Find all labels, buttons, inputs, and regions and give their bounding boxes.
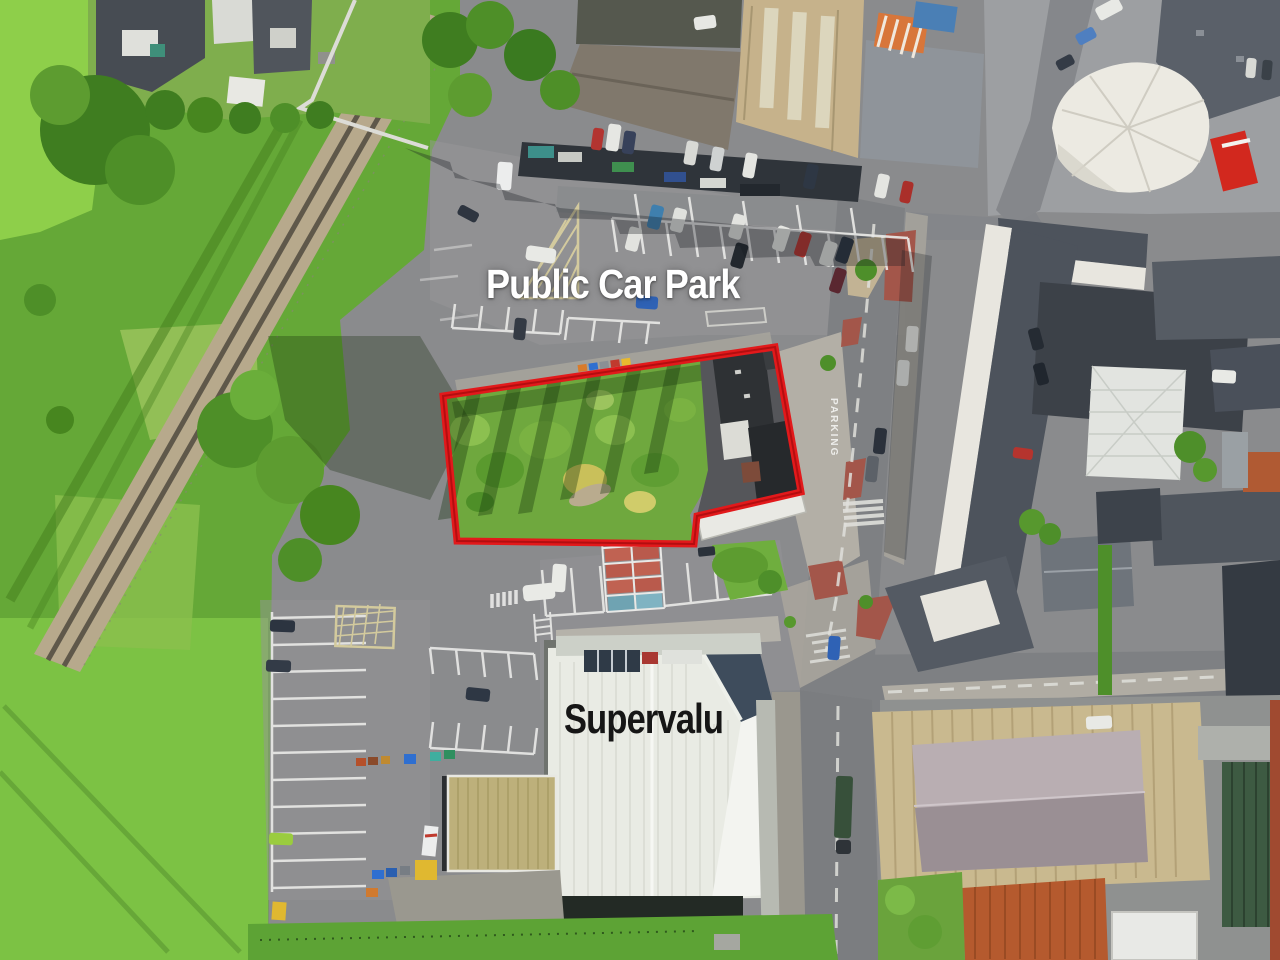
street-tree	[859, 595, 873, 609]
hedge	[270, 103, 300, 133]
bin	[588, 362, 598, 370]
grey-buildings	[860, 40, 984, 168]
truck	[834, 776, 853, 839]
yellow-container	[415, 860, 437, 880]
white-warehouse-roof	[1086, 366, 1186, 480]
mini-zebra	[492, 590, 516, 608]
supermarket-label: Supervalu	[564, 698, 723, 740]
rust-roof-small	[1243, 452, 1280, 492]
red-brick-paving	[808, 560, 848, 600]
field-bottom-left-bright	[0, 618, 268, 960]
weeds	[908, 915, 942, 949]
shop-sign	[612, 162, 634, 172]
car	[1245, 58, 1257, 79]
bush	[24, 284, 56, 316]
scrub	[624, 491, 656, 513]
car	[827, 636, 841, 661]
green-clad-building	[1222, 762, 1274, 927]
bin	[578, 364, 588, 372]
tree	[230, 370, 280, 420]
red-roof-strip	[1270, 700, 1280, 960]
ribbed-roof-small	[1222, 432, 1248, 488]
shed-roof-white	[720, 420, 752, 460]
apartment-complex	[885, 218, 1280, 700]
crate	[386, 868, 397, 877]
car	[513, 317, 527, 340]
bush	[1039, 523, 1061, 545]
hedge	[306, 101, 334, 129]
side-store-roof-tan	[448, 776, 556, 871]
trailer	[522, 582, 555, 601]
bin	[621, 358, 631, 366]
skylight	[744, 394, 750, 399]
aerial-scene	[0, 0, 1280, 960]
market-canopy-area	[984, 0, 1280, 226]
parking-bay-lines	[430, 722, 537, 754]
tree	[448, 73, 492, 117]
bin	[610, 359, 620, 367]
car-park-label: Public Car Park	[486, 264, 740, 305]
street-tree	[784, 616, 796, 628]
shop-sign	[664, 172, 686, 182]
accessible-bay	[636, 592, 663, 610]
crate	[381, 756, 390, 764]
aerial-photo: Public Car Park Supervalu PARKING	[0, 0, 1280, 960]
shop-sign	[740, 184, 780, 196]
house-wall	[270, 28, 296, 48]
white-container	[1112, 912, 1197, 960]
rear-yards	[576, 0, 742, 48]
car	[899, 180, 914, 204]
parking-bay-lines	[430, 648, 537, 680]
tree	[1174, 431, 1206, 463]
grass-strip-south	[248, 914, 838, 960]
car	[698, 546, 716, 557]
crate	[366, 888, 378, 897]
tree	[540, 70, 580, 110]
tree	[504, 29, 556, 81]
chimney	[1236, 56, 1244, 62]
tree	[30, 65, 90, 125]
brick-shed	[741, 461, 761, 483]
crate	[356, 758, 366, 766]
car	[605, 123, 622, 152]
slate-block	[1222, 560, 1280, 700]
car	[270, 620, 295, 633]
truck-cab	[836, 840, 851, 854]
tree	[278, 538, 322, 582]
industrial-warehouse	[872, 695, 1280, 960]
shop-sign	[528, 146, 554, 158]
crate	[404, 754, 416, 764]
accessible-bay	[608, 594, 635, 612]
crate	[400, 866, 410, 875]
shop-sign	[700, 178, 726, 188]
shop-sign	[558, 152, 582, 162]
crate	[444, 750, 455, 759]
crate	[372, 870, 384, 879]
car	[874, 173, 891, 199]
store-sign-red	[642, 652, 658, 664]
street-tree	[820, 355, 836, 371]
grey-gable-shed	[1040, 534, 1134, 612]
van	[551, 564, 567, 593]
store-sign-white	[662, 650, 702, 664]
development-site	[438, 332, 806, 543]
bin	[599, 361, 609, 369]
tree	[105, 135, 175, 205]
van-stripe	[425, 835, 437, 836]
car	[1086, 715, 1113, 729]
hedge	[187, 97, 223, 133]
tree	[466, 1, 514, 49]
garden-shed	[150, 44, 165, 57]
hedge	[229, 102, 261, 134]
car	[591, 127, 605, 150]
chimney	[1196, 30, 1204, 36]
slate-block	[1150, 488, 1280, 566]
car	[1261, 60, 1273, 81]
hedge	[145, 90, 185, 130]
weeds	[885, 885, 915, 915]
tree	[1193, 458, 1217, 482]
concrete-roof	[1198, 726, 1280, 760]
dark-block	[1096, 488, 1162, 544]
bush	[46, 406, 74, 434]
grit-bin-yellow	[271, 902, 286, 921]
tree	[300, 485, 360, 545]
car	[269, 833, 293, 846]
slate-block	[1152, 256, 1280, 340]
car	[1212, 369, 1237, 383]
concrete-steps	[714, 934, 740, 950]
hedge	[1098, 545, 1112, 695]
parking-road-marking-label: PARKING	[828, 398, 838, 457]
car	[266, 660, 291, 673]
crate	[430, 752, 441, 761]
skylight	[735, 370, 741, 375]
verge-bush	[758, 570, 782, 594]
car	[465, 687, 490, 702]
crate	[368, 757, 378, 765]
